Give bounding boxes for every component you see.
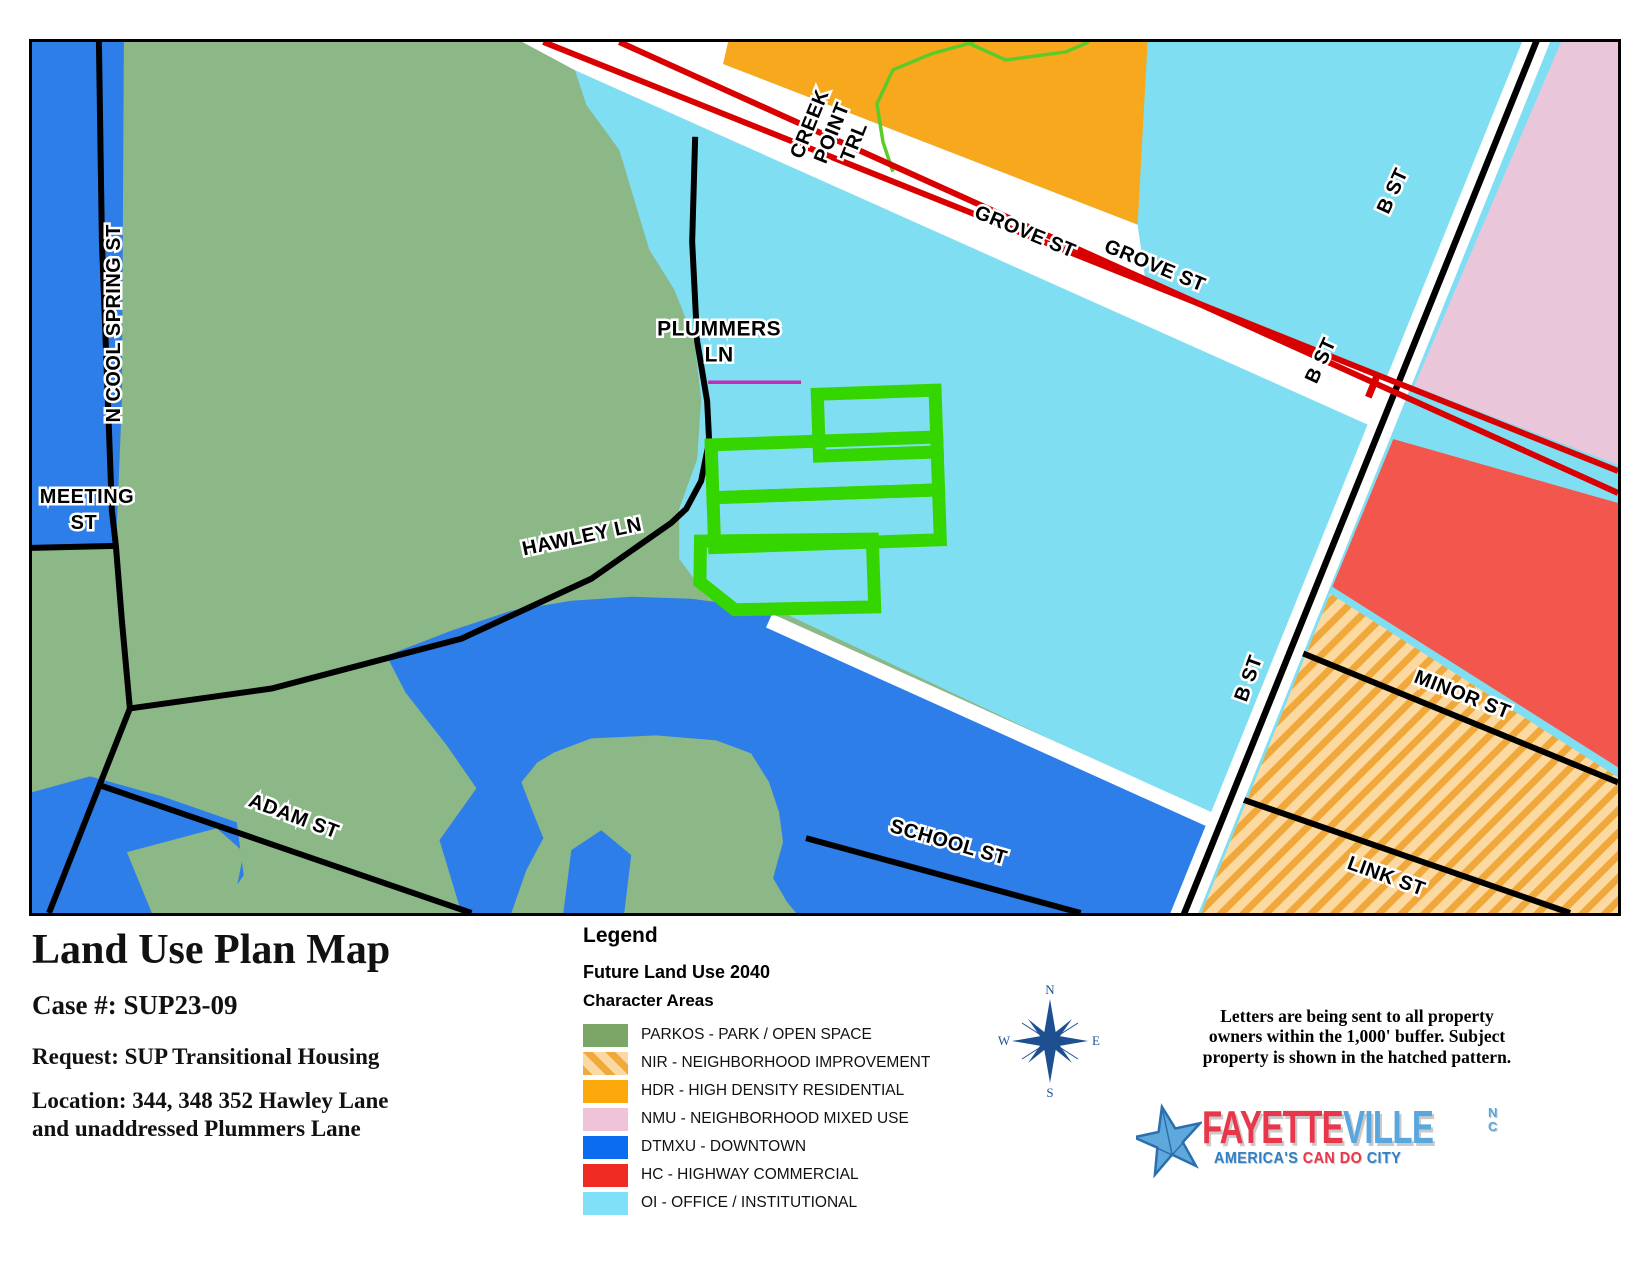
location-line-1: Location: 344, 348 352 Hawley Lane (32, 1088, 389, 1114)
logo-text-fayette: FAYETTE (1202, 1101, 1343, 1153)
label-meeting-1: MEETING (40, 486, 134, 508)
compass-star (1012, 999, 1088, 1083)
legend-heading: Legend (583, 924, 983, 948)
logo-nc-n: N (1488, 1106, 1497, 1120)
logo-text-ville: VILLE (1343, 1101, 1433, 1153)
label-meeting-2: ST (71, 512, 98, 534)
page: N COOL SPRING ST MEETING ST CREEK POINT … (0, 0, 1650, 1275)
map-frame: N COOL SPRING ST MEETING ST CREEK POINT … (29, 39, 1621, 916)
land-use-map: N COOL SPRING ST MEETING ST CREEK POINT … (32, 42, 1618, 913)
fayetteville-logo: FAYETTEVILLE N C AMERICA'S CAN DO CITY (1136, 1098, 1536, 1193)
nmu-swatch (583, 1108, 628, 1131)
park-tree-blob (511, 735, 796, 913)
legend-item-parkos: PARKOS - PARK / OPEN SPACE (583, 1021, 983, 1049)
logo-star-icon (1136, 1100, 1202, 1180)
compass-rose: N S W E (998, 982, 1102, 1100)
buffer-note-line-2: owners within the 1,000' buffer. Subject (1198, 1026, 1516, 1046)
hc-swatch (583, 1164, 628, 1187)
label-plummers-1: PLUMMERS (657, 317, 781, 340)
parkos-swatch (583, 1024, 628, 1047)
hdr-swatch (583, 1080, 628, 1103)
tagline-city: CITY (1367, 1150, 1402, 1167)
legend-subheading: Future Land Use 2040 (583, 962, 983, 983)
legend-item-label: OI - OFFICE / INSTITUTIONAL (641, 1194, 857, 1212)
legend-item-oi: OI - OFFICE / INSTITUTIONAL (583, 1189, 983, 1217)
legend: Legend Future Land Use 2040 Character Ar… (583, 924, 983, 1217)
label-plummers-2: LN (705, 343, 734, 366)
legend-item-label: NIR - NEIGHBORHOOD IMPROVEMENT (641, 1054, 930, 1072)
legend-item-label: NMU - NEIGHBORHOOD MIXED USE (641, 1110, 909, 1128)
tagline-can-do: CAN DO (1303, 1150, 1362, 1167)
nir-swatch (583, 1052, 628, 1075)
case-number: Case #: SUP23-09 (32, 990, 237, 1021)
legend-item-dtmxu: DTMXU - DOWNTOWN (583, 1133, 983, 1161)
road-meeting (32, 546, 116, 548)
compass-label-n: N (1045, 982, 1055, 997)
legend-item-label: HDR - HIGH DENSITY RESIDENTIAL (641, 1082, 904, 1100)
tagline-americas: AMERICA'S (1214, 1150, 1298, 1167)
legend-item-label: HC - HIGHWAY COMMERCIAL (641, 1166, 859, 1184)
legend-item-label: PARKOS - PARK / OPEN SPACE (641, 1026, 872, 1044)
page-title: Land Use Plan Map (32, 926, 390, 974)
request-text: Request: SUP Transitional Housing (32, 1044, 379, 1070)
label-n-cool-spring-st: N COOL SPRING ST (103, 224, 125, 422)
logo-nc: N C (1488, 1106, 1497, 1133)
buffer-note-line-1: Letters are being sent to all property (1198, 1006, 1516, 1026)
dtmxu-swatch (583, 1136, 628, 1159)
compass-label-w: W (998, 1033, 1011, 1048)
legend-item-hc: HC - HIGHWAY COMMERCIAL (583, 1161, 983, 1189)
legend-item-nmu: NMU - NEIGHBORHOOD MIXED USE (583, 1105, 983, 1133)
compass-label-s: S (1046, 1085, 1053, 1100)
compass-icon: N S W E (998, 982, 1102, 1100)
logo-nc-c: C (1488, 1120, 1497, 1134)
logo-tagline: AMERICA'S CAN DO CITY (1214, 1150, 1401, 1168)
legend-item-label: DTMXU - DOWNTOWN (641, 1138, 806, 1156)
legend-item-nir: NIR - NEIGHBORHOOD IMPROVEMENT (583, 1049, 983, 1077)
oi-swatch (583, 1192, 628, 1215)
buffer-note-line-3: property is shown in the hatched pattern… (1198, 1047, 1516, 1067)
location-line-2: and unaddressed Plummers Lane (32, 1116, 361, 1142)
compass-label-e: E (1092, 1033, 1100, 1048)
logo-wordmark: FAYETTEVILLE (1202, 1104, 1523, 1150)
buffer-note: Letters are being sent to all property o… (1198, 1006, 1516, 1067)
legend-item-hdr: HDR - HIGH DENSITY RESIDENTIAL (583, 1077, 983, 1105)
legend-section-title: Character Areas (583, 991, 983, 1011)
